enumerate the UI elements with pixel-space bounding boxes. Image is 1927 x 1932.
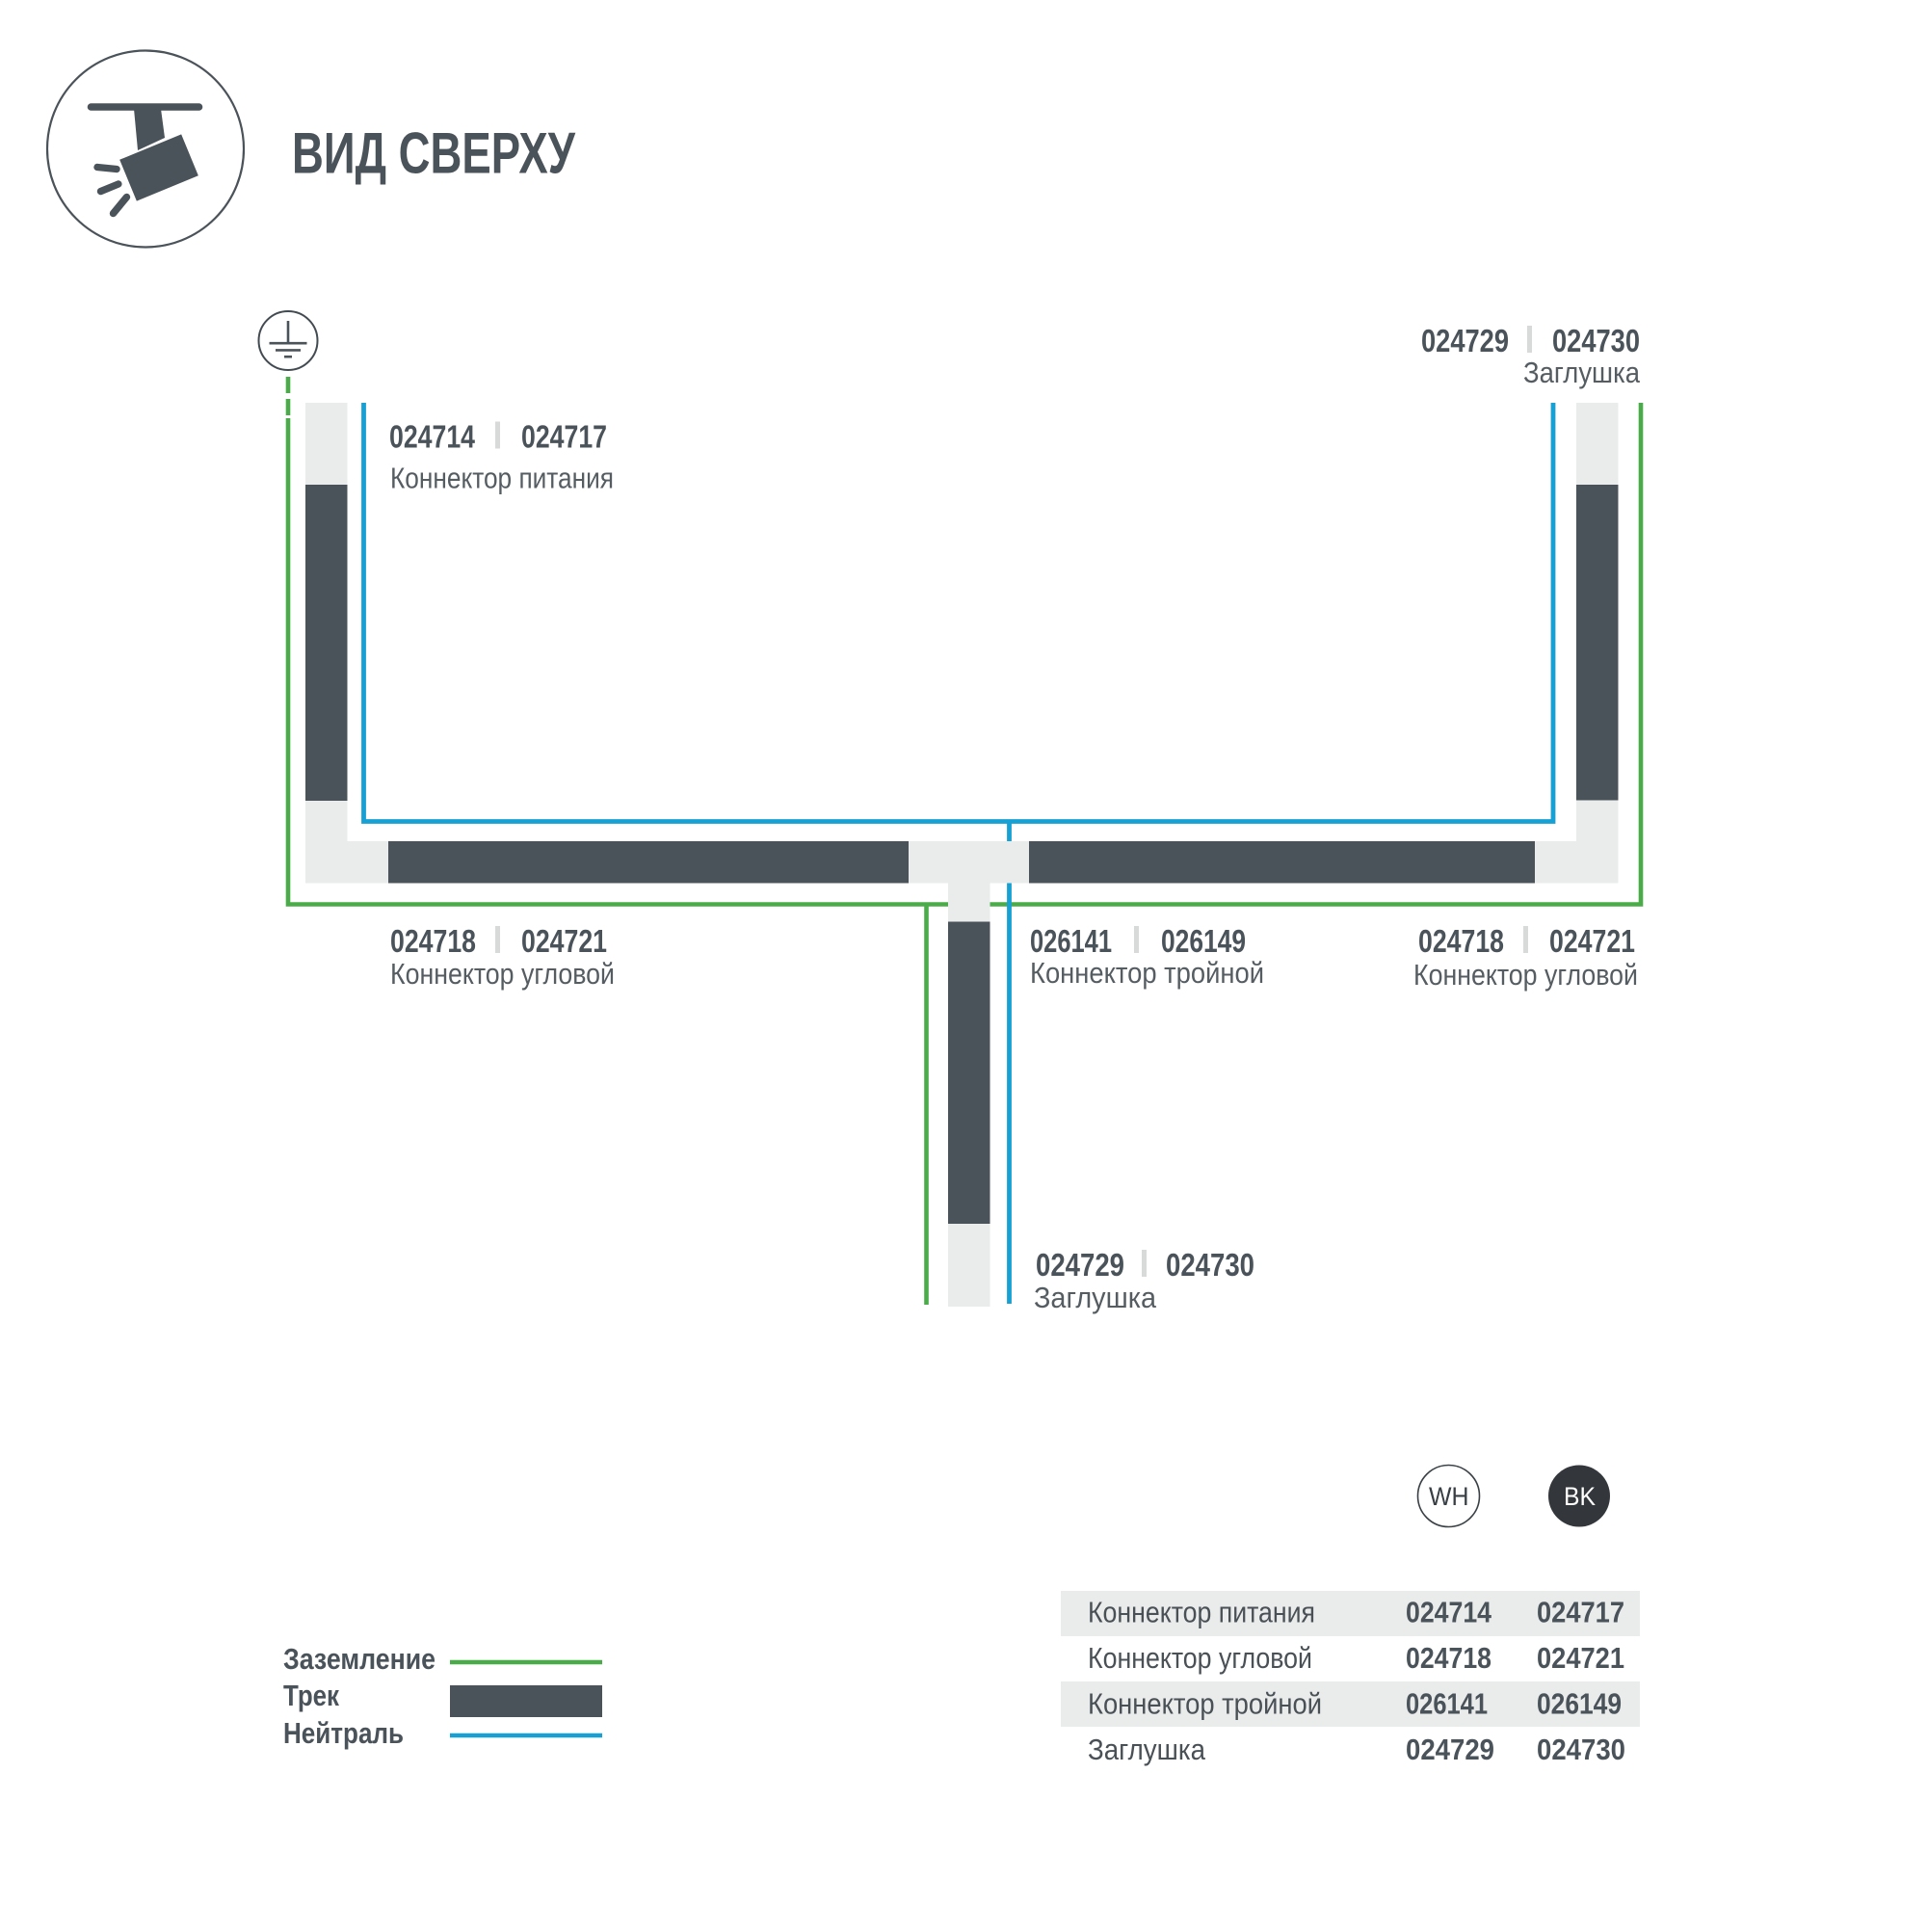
svg-text:026149: 026149 <box>1161 923 1246 959</box>
svg-text:Заглушка: Заглушка <box>1088 1733 1206 1766</box>
svg-text:024729: 024729 <box>1036 1247 1124 1283</box>
svg-text:Коннектор питания: Коннектор питания <box>390 462 614 495</box>
svg-text:024714: 024714 <box>389 419 476 455</box>
svg-text:026141: 026141 <box>1030 923 1112 959</box>
svg-text:024730: 024730 <box>1166 1247 1254 1283</box>
svg-text:Коннектор тройной: Коннектор тройной <box>1030 956 1264 990</box>
svg-text:Заглушка: Заглушка <box>1523 356 1641 389</box>
svg-text:Трек: Трек <box>283 1679 339 1712</box>
svg-text:Заглушка: Заглушка <box>1034 1281 1157 1314</box>
svg-text:024718: 024718 <box>1418 923 1504 959</box>
svg-text:Коннектор угловой: Коннектор угловой <box>1088 1641 1312 1675</box>
svg-text:024721: 024721 <box>1549 923 1635 959</box>
svg-text:024730: 024730 <box>1537 1733 1625 1766</box>
svg-text:024714: 024714 <box>1406 1596 1492 1629</box>
svg-text:ВИД СВЕРХУ: ВИД СВЕРХУ <box>292 121 576 186</box>
svg-text:Коннектор тройной: Коннектор тройной <box>1088 1687 1322 1721</box>
svg-text:026149: 026149 <box>1537 1687 1622 1721</box>
svg-text:024730: 024730 <box>1552 323 1640 358</box>
svg-text:026141: 026141 <box>1406 1687 1488 1721</box>
svg-text:024721: 024721 <box>521 923 607 959</box>
svg-text:BK: BK <box>1564 1482 1596 1511</box>
svg-text:024717: 024717 <box>521 419 607 455</box>
svg-text:Заземление: Заземление <box>283 1642 436 1676</box>
svg-text:WH: WH <box>1429 1482 1469 1511</box>
svg-text:024721: 024721 <box>1537 1641 1624 1675</box>
svg-text:024729: 024729 <box>1421 323 1509 358</box>
svg-text:024718: 024718 <box>1406 1641 1491 1675</box>
svg-text:Коннектор угловой: Коннектор угловой <box>1413 958 1638 992</box>
svg-text:Коннектор угловой: Коннектор угловой <box>390 957 615 991</box>
svg-text:024718: 024718 <box>390 923 476 959</box>
svg-text:024717: 024717 <box>1537 1596 1624 1629</box>
svg-text:Нейтраль: Нейтраль <box>283 1716 404 1750</box>
svg-text:024729: 024729 <box>1406 1733 1494 1766</box>
svg-text:Коннектор питания: Коннектор питания <box>1088 1596 1315 1629</box>
